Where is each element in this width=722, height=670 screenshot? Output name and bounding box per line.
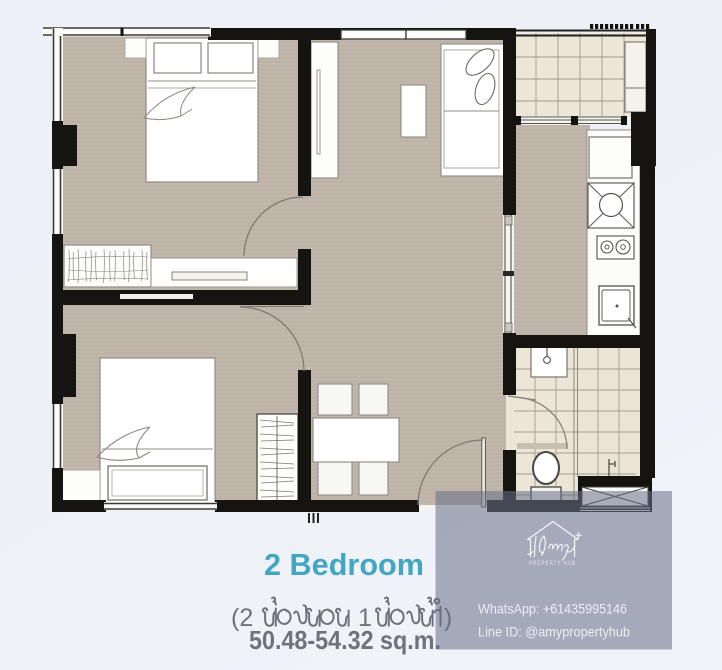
- svg-text:Line ID: @amypropertyhub: Line ID: @amypropertyhub: [478, 624, 630, 640]
- svg-text:WhatsApp: +61435995146: WhatsApp: +61435995146: [478, 601, 627, 617]
- svg-text:PROPERTY HUB: PROPERTY HUB: [529, 560, 576, 567]
- svg-text:2 Bedroom: 2 Bedroom: [264, 548, 424, 582]
- svg-text:50.48-54.32 sq.m.: 50.48-54.32 sq.m.: [249, 625, 441, 655]
